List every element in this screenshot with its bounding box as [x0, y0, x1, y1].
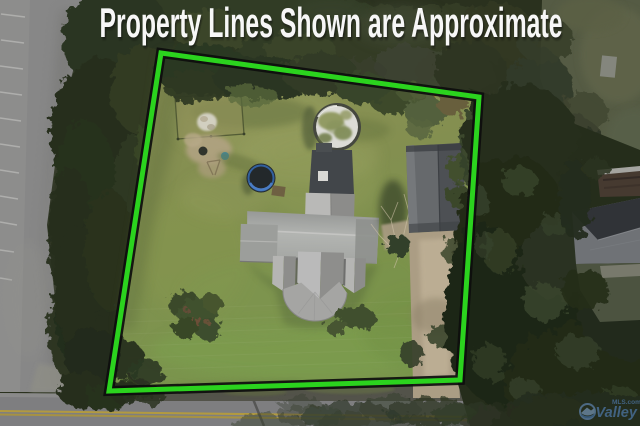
svg-text:MLS.com: MLS.com — [612, 399, 640, 406]
svg-text:Valley: Valley — [596, 405, 638, 421]
svg-text:Property Lines Shown are Appro: Property Lines Shown are Approximate — [100, 1, 563, 47]
